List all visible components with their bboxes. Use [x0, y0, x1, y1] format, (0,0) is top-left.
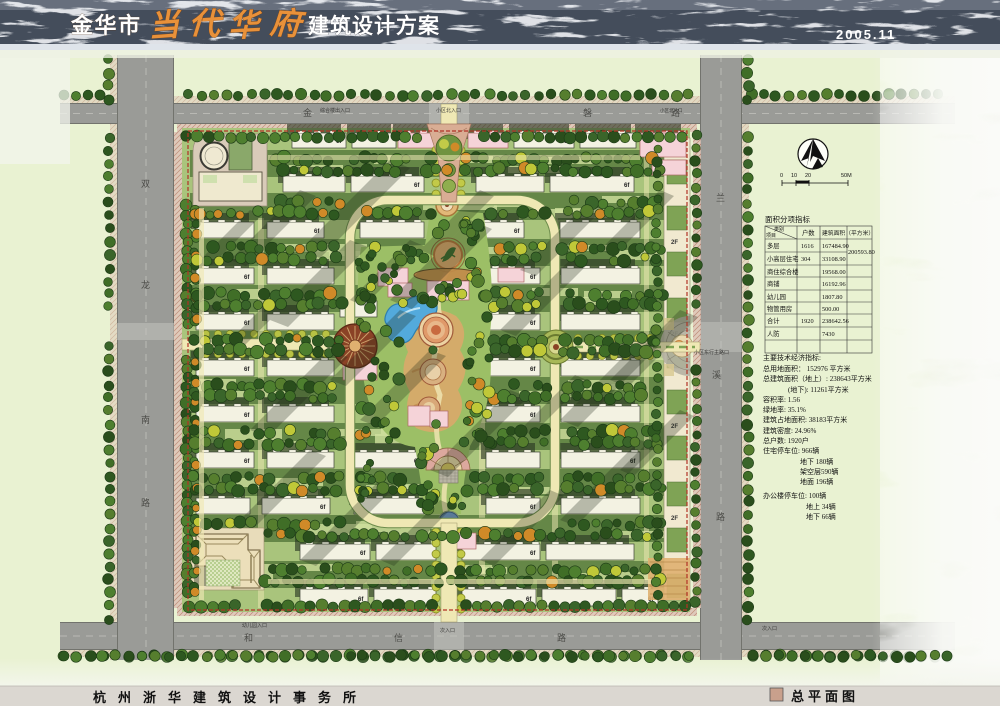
svg-text:10: 10 — [791, 173, 797, 179]
svg-text:幼儿园: 幼儿园 — [767, 292, 786, 301]
svg-text:磐: 磐 — [583, 107, 592, 118]
svg-text:杭州浙华建筑设计事务所: 杭州浙华建筑设计事务所 — [93, 690, 368, 705]
svg-text:建筑面积（平方米）: 建筑面积（平方米） — [822, 229, 874, 237]
svg-text:路: 路 — [557, 632, 566, 643]
svg-text:总用地面积： 152976 平方米: 总用地面积： 152976 平方米 — [763, 364, 851, 373]
svg-text:167484.90: 167484.90 — [822, 243, 849, 250]
svg-text:304: 304 — [801, 256, 811, 263]
svg-text:总建筑面积（地上）: 238643平方米: 总建筑面积（地上）: 238643平方米 — [763, 374, 872, 383]
svg-text:类别: 类别 — [774, 226, 784, 233]
svg-text:金: 金 — [303, 107, 312, 118]
svg-text:龙: 龙 — [141, 279, 150, 290]
svg-text:20: 20 — [805, 173, 811, 179]
svg-text:综合楼出入口: 综合楼出入口 — [320, 107, 350, 114]
svg-text:238642.56: 238642.56 — [822, 318, 849, 325]
svg-text:路: 路 — [716, 511, 725, 522]
svg-text:架空层590辆: 架空层590辆 — [800, 467, 839, 476]
svg-text:溪: 溪 — [712, 369, 721, 380]
svg-text:和: 和 — [244, 633, 253, 643]
svg-text:33108.90: 33108.90 — [822, 256, 846, 263]
svg-text:小区北入口: 小区北入口 — [660, 107, 683, 114]
svg-text:人防: 人防 — [767, 329, 780, 338]
svg-text:(地下): 11261平方米: (地下): 11261平方米 — [788, 385, 849, 394]
svg-text:总户数: 1920户: 总户数: 1920户 — [763, 436, 809, 445]
svg-text:1920: 1920 — [801, 318, 814, 325]
svg-text:16192.96: 16192.96 — [822, 281, 846, 288]
svg-text:办公楼停车位: 100辆: 办公楼停车位: 100辆 — [763, 491, 826, 500]
svg-text:次入口: 次入口 — [440, 627, 455, 634]
svg-text:0: 0 — [780, 173, 783, 179]
svg-text:19568.00: 19568.00 — [822, 269, 846, 276]
svg-text:双: 双 — [141, 179, 150, 189]
svg-text:2F: 2F — [671, 516, 678, 522]
svg-text:住宅停车位: 966辆: 住宅停车位: 966辆 — [763, 446, 819, 455]
svg-text:200593.80: 200593.80 — [848, 249, 875, 256]
svg-text:户数: 户数 — [802, 228, 815, 237]
svg-text:小区北入口: 小区北入口 — [436, 107, 461, 114]
svg-text:地下 180辆: 地下 180辆 — [800, 457, 833, 466]
svg-text:项目: 项目 — [766, 233, 776, 239]
svg-text:建筑密度: 24.96%: 建筑密度: 24.96% — [763, 426, 816, 435]
svg-text:地下 66辆: 地下 66辆 — [806, 512, 836, 521]
svg-text:商住综合楼: 商住综合楼 — [767, 267, 799, 276]
svg-text:兰: 兰 — [716, 192, 725, 203]
svg-text:1807.80: 1807.80 — [822, 294, 842, 301]
svg-text:小区东行主路口: 小区东行主路口 — [694, 349, 729, 356]
svg-text:500.00: 500.00 — [822, 306, 839, 313]
svg-text:地面 196辆: 地面 196辆 — [800, 477, 833, 486]
svg-text:商铺: 商铺 — [767, 279, 780, 288]
svg-text:建筑设计方案: 建筑设计方案 — [308, 14, 440, 38]
svg-text:物管用房: 物管用房 — [767, 304, 792, 313]
svg-text:信: 信 — [394, 632, 403, 643]
svg-text:金华市: 金华市 — [70, 13, 142, 38]
svg-text:幼儿园入口: 幼儿园入口 — [242, 622, 267, 629]
svg-text:主要技术经济指标:: 主要技术经济指标: — [763, 353, 821, 362]
svg-text:面积分项指标: 面积分项指标 — [765, 214, 810, 224]
svg-text:小高层住宅: 小高层住宅 — [767, 254, 798, 263]
svg-text:次入口: 次入口 — [762, 625, 777, 632]
svg-text:多层: 多层 — [767, 241, 780, 250]
svg-text:50M: 50M — [841, 173, 852, 179]
svg-text:总平面图: 总平面图 — [791, 689, 859, 704]
svg-text:2005.11: 2005.11 — [836, 27, 896, 42]
svg-text:绿地率: 35.1%: 绿地率: 35.1% — [763, 405, 806, 414]
svg-text:2F: 2F — [671, 240, 678, 246]
svg-text:建筑占地面积: 38183平方米: 建筑占地面积: 38183平方米 — [763, 415, 847, 424]
svg-text:地上 34辆: 地上 34辆 — [806, 502, 836, 511]
svg-text:路: 路 — [141, 497, 150, 508]
svg-text:7430: 7430 — [822, 331, 835, 338]
svg-text:1616: 1616 — [801, 243, 814, 250]
svg-text:容积率: 1.56: 容积率: 1.56 — [763, 395, 800, 404]
svg-text:南: 南 — [141, 414, 150, 425]
svg-text:合计: 合计 — [767, 316, 780, 325]
